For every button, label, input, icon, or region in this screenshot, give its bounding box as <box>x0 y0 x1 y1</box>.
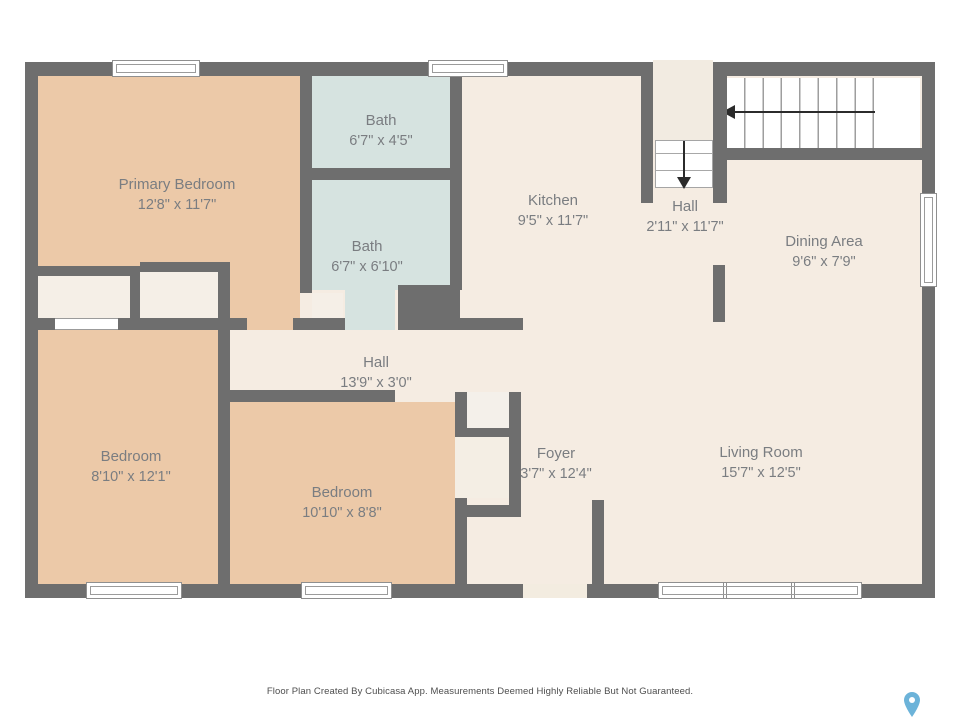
door-closet-left <box>55 318 118 330</box>
wall-kitchen-hall <box>641 75 653 203</box>
room-dims: 15'7" x 12'5" <box>719 463 802 483</box>
wall-bath-block <box>398 285 460 330</box>
room-label-bedroom-left: Bedroom 8'10" x 12'1" <box>91 447 171 487</box>
stairs-down-line <box>683 141 685 178</box>
wall-closet2-top <box>140 262 218 272</box>
room-label-foyer: Foyer 3'7" x 12'4" <box>520 444 591 484</box>
wall-closet1-top <box>38 266 140 276</box>
wall-right <box>922 62 935 598</box>
room-dims: 6'7" x 4'5" <box>349 131 412 151</box>
stairs-down-arrow-icon <box>677 177 691 189</box>
room-name: Bath <box>331 237 402 257</box>
room-name: Hall <box>340 353 411 373</box>
window-mullion <box>723 583 727 598</box>
room-dims: 2'11" x 11'7" <box>646 217 723 237</box>
wall-foyer-closet-right <box>509 392 521 517</box>
window-dining-area <box>920 193 937 287</box>
room-dims: 3'7" x 12'4" <box>520 464 591 484</box>
wall-bath-divider <box>312 168 450 180</box>
room-label-hall-central: Hall 13'9" x 3'0" <box>340 353 411 393</box>
floor-plan: Primary Bedroom 12'8" x 11'7" Bath 6'7" … <box>0 0 960 720</box>
foyer-closet-bottom <box>455 437 509 498</box>
room-name: Hall <box>646 197 723 217</box>
wall-bath-kitchen <box>450 75 462 290</box>
disclaimer-text: Floor Plan Created By Cubicasa App. Meas… <box>0 686 960 697</box>
room-dims: 8'10" x 12'1" <box>91 467 171 487</box>
window-mullion <box>791 583 795 598</box>
wall-left <box>25 62 38 598</box>
wall-primary-bath <box>300 75 312 293</box>
window-living-room <box>658 582 862 599</box>
room-label-dining-area: Dining Area 9'6" x 7'9" <box>785 232 863 272</box>
wall-band-a <box>25 318 55 330</box>
room-name: Foyer <box>520 444 591 464</box>
wall-foyer-living-stub <box>592 500 604 585</box>
wall-foyer-closet-divider <box>455 428 513 437</box>
room-dims: 9'6" x 7'9" <box>785 252 863 272</box>
wall-hall-stairs <box>713 62 727 203</box>
window-bedroom-center <box>301 582 392 599</box>
room-label-primary-bedroom: Primary Bedroom 12'8" x 11'7" <box>119 175 236 215</box>
room-name: Primary Bedroom <box>119 175 236 195</box>
wall-bedroom-left-right <box>218 262 230 585</box>
room-label-kitchen: Kitchen 9'5" x 11'7" <box>518 191 588 231</box>
floor-plan-page: { "rooms": [ {"name": "Primary Bedroom",… <box>0 0 960 720</box>
closet-primary-1 <box>38 276 130 318</box>
foyer-closet-top <box>467 392 509 428</box>
room-name: Bedroom <box>302 483 382 503</box>
room-dims: 10'10" x 8'8" <box>302 503 382 523</box>
room-label-bath-large: Bath 6'7" x 6'10" <box>331 237 402 277</box>
room-name: Dining Area <box>785 232 863 252</box>
window-bedroom-left <box>86 582 182 599</box>
window-kitchen <box>428 60 508 77</box>
wall-closet1-right <box>130 266 140 318</box>
bath-niche <box>312 293 343 318</box>
room-label-hall-stairs: Hall 2'11" x 11'7" <box>646 197 723 237</box>
wall-bedroom-center-right <box>455 498 467 585</box>
wall-band-d <box>457 318 523 330</box>
staircase-up <box>727 78 920 148</box>
room-label-living-room: Living Room 15'7" x 12'5" <box>719 443 802 483</box>
location-pin-icon <box>904 692 920 718</box>
wall-hall-dining-stub <box>713 265 725 322</box>
wall-stairs-bottom <box>713 148 922 160</box>
wall-band-b <box>118 318 247 330</box>
stairs-direction-line <box>734 111 875 113</box>
room-name: Living Room <box>719 443 802 463</box>
bath-door-threshold <box>345 290 395 330</box>
room-name: Bedroom <box>91 447 171 467</box>
room-dims: 6'7" x 6'10" <box>331 257 402 277</box>
room-dims: 13'9" x 3'0" <box>340 373 411 393</box>
room-label-bedroom-center: Bedroom 10'10" x 8'8" <box>302 483 382 523</box>
room-dims: 9'5" x 11'7" <box>518 211 588 231</box>
wall-top-stair-gap <box>653 62 713 76</box>
room-dims: 12'8" x 11'7" <box>119 195 236 215</box>
closet-primary-2 <box>140 272 218 318</box>
wall-band-c <box>293 318 345 330</box>
room-name: Kitchen <box>518 191 588 211</box>
room-label-bath-small: Bath 6'7" x 4'5" <box>349 111 412 151</box>
window-primary-bedroom <box>112 60 200 77</box>
door-entrance <box>523 584 587 598</box>
room-name: Bath <box>349 111 412 131</box>
